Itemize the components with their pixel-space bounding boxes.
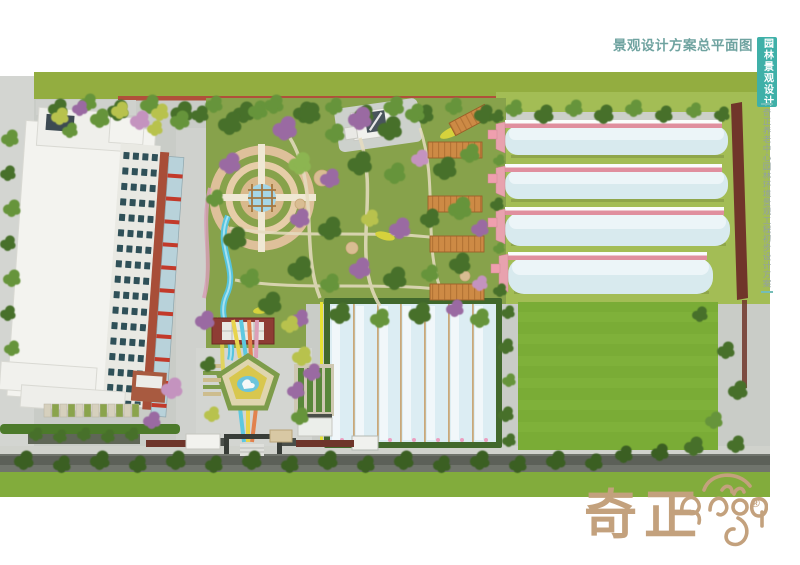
registered-trademark-mark: ® xyxy=(751,496,760,510)
side-tab: 园林景观设计 xyxy=(757,37,777,107)
site-plan-rendering xyxy=(0,68,770,498)
presentation-sheet: 景观设计方案总平面图 园林景观设计 奇正养老中心园林环境景观工程初步设计方案 奇… xyxy=(0,0,800,565)
side-caption-text: 奇正养老中心园林环境景观工程初步设计方案 xyxy=(761,108,773,288)
greenhouse-2 xyxy=(488,164,728,202)
greenhouse-3 xyxy=(488,207,730,246)
side-caption: 奇正养老中心园林环境景观工程初步设计方案 xyxy=(758,103,776,293)
main-building xyxy=(0,106,187,417)
site-plan-svg xyxy=(0,68,770,498)
pergola xyxy=(248,184,276,212)
side-tab-label: 园林景观设计 xyxy=(760,38,775,107)
gate-kiosk xyxy=(186,434,220,449)
page-title: 景观设计方案总平面图 xyxy=(613,34,753,54)
greenhouse-1 xyxy=(488,120,728,158)
bracket-top xyxy=(761,103,773,105)
bracket-bottom xyxy=(761,291,773,293)
tan-shed xyxy=(270,430,292,442)
crop-field xyxy=(518,302,718,450)
right-greenhouses xyxy=(488,120,730,294)
greenhouse-4 xyxy=(491,252,713,294)
